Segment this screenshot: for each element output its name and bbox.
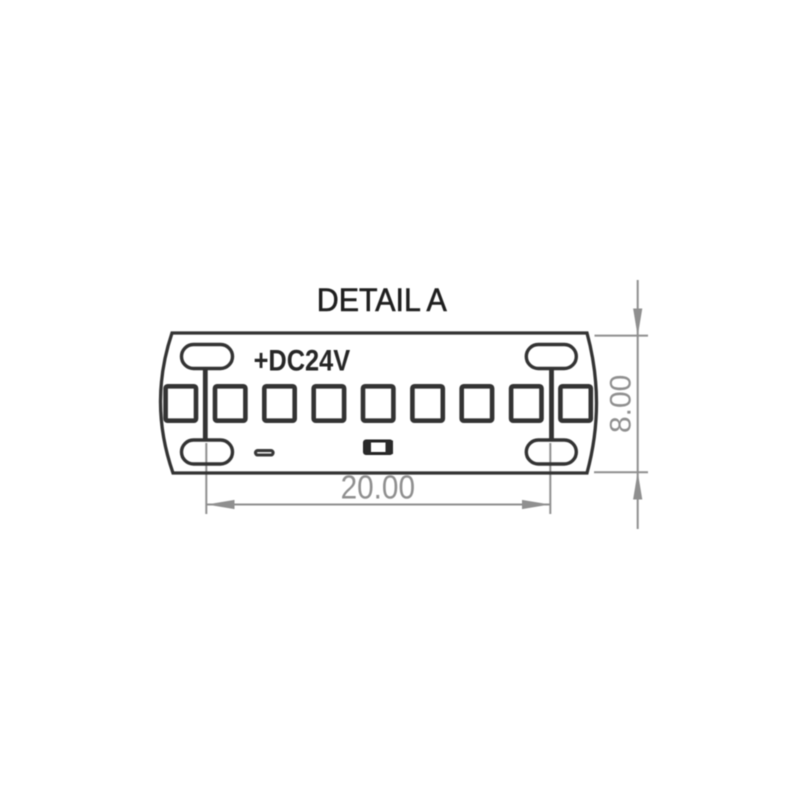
- svg-text:8.00: 8.00: [605, 375, 638, 433]
- svg-text:+DC24V: +DC24V: [254, 345, 351, 378]
- svg-text:DETAIL A: DETAIL A: [317, 282, 447, 318]
